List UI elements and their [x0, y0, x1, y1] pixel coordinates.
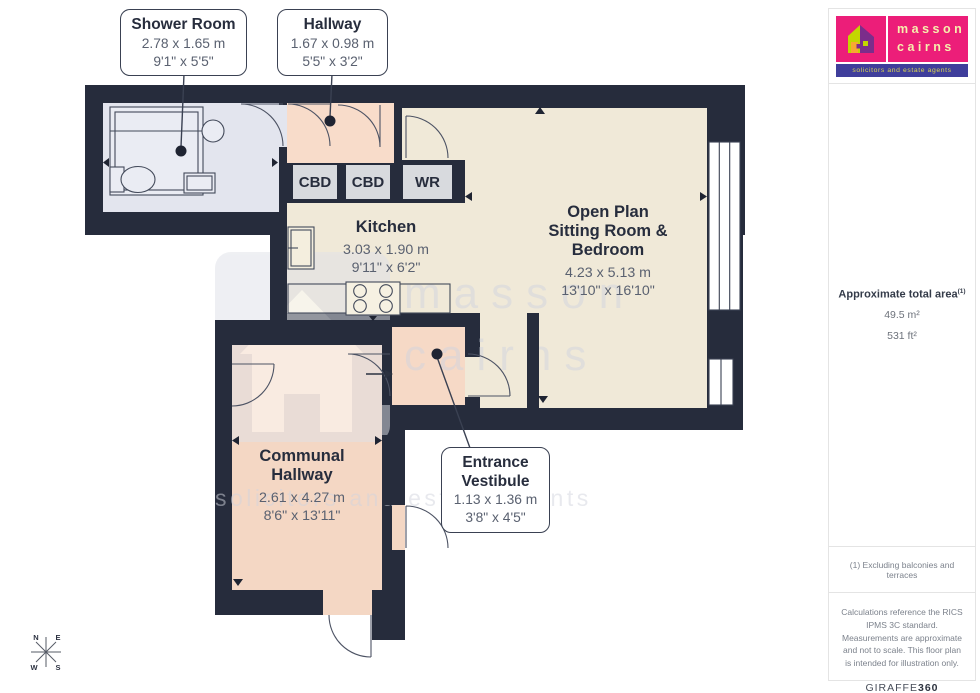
room-dims-metric: 1.67 x 0.98 m	[282, 35, 383, 53]
agency-name-line1: masson	[897, 21, 968, 39]
agency-name-line2: cairns	[897, 39, 968, 57]
compass-e: E	[55, 633, 60, 642]
room-dims-metric: 4.23 x 5.13 m	[508, 264, 708, 282]
label-open-plan: Open Plan Sitting Room & Bedroom 4.23 x …	[508, 203, 708, 301]
brand-name: GIRAFFE	[865, 682, 918, 693]
room-dims-metric: 1.13 x 1.36 m	[446, 491, 545, 509]
window-large	[709, 142, 740, 310]
room-title: Shower Room	[125, 16, 242, 35]
total-area-label: Approximate total area(1)	[838, 288, 965, 301]
room-title: Hallway	[282, 16, 383, 35]
disclaimer-section: Calculations reference the RICS IPMS 3C …	[829, 593, 975, 693]
stove	[346, 282, 400, 315]
label-closet-cbd-2: CBD	[346, 174, 390, 191]
room-title: Open Plan	[508, 203, 708, 222]
callout-hallway: Hallway 1.67 x 0.98 m 5'5" x 3'2"	[277, 9, 388, 76]
agency-tagline: solicitors and estate agents	[836, 64, 968, 77]
door-gap-communal-right	[392, 505, 405, 550]
label-closet-cbd-1: CBD	[293, 174, 337, 191]
total-area-imperial: 531 ft²	[887, 330, 917, 342]
total-area-label-text: Approximate total area	[838, 288, 957, 300]
room-dims-imperial: 8'6" x 13'11"	[212, 507, 392, 525]
room-title: Kitchen	[296, 218, 476, 237]
door-communal-bottom	[329, 615, 371, 657]
room-title: Sitting Room &	[508, 222, 708, 241]
agency-logo: masson cairns solicitors and estate agen…	[829, 9, 975, 84]
brand-suffix: 360	[918, 682, 939, 693]
room-dims-imperial: 13'10" x 16'10"	[508, 282, 708, 300]
area-footnote: (1) Excluding balconies and terraces	[829, 547, 975, 593]
label-kitchen: Kitchen 3.03 x 1.90 m 9'11" x 6'2"	[296, 218, 476, 278]
room-title: Hallway	[212, 466, 392, 485]
compass-w: W	[30, 663, 38, 672]
total-area-metric: 49.5 m²	[884, 309, 920, 321]
callout-entrance-vestibule: Entrance Vestibule 1.13 x 1.36 m 3'8" x …	[441, 447, 550, 533]
room-dims-imperial: 9'11" x 6'2"	[296, 259, 476, 277]
agency-house-icon	[836, 16, 886, 62]
room-dims-imperial: 5'5" x 3'2"	[282, 53, 383, 71]
toilet-bowl	[121, 167, 155, 193]
total-area-section: Approximate total area(1) 49.5 m² 531 ft…	[829, 84, 975, 547]
label-closet-wr: WR	[403, 174, 452, 191]
compass-s: S	[55, 663, 60, 672]
callout-shower-room: Shower Room 2.78 x 1.65 m 9'1" x 5'5"	[120, 9, 247, 76]
room-dims-imperial: 9'1" x 5'5"	[125, 53, 242, 71]
floorplan-page: masson cairns solicitors and estate agen…	[0, 0, 980, 693]
label-communal-hallway: Communal Hallway 2.61 x 4.27 m 8'6" x 13…	[212, 447, 392, 526]
room-dims-imperial: 3'8" x 4'5"	[446, 509, 545, 527]
total-area-footnote-marker: (1)	[958, 288, 966, 295]
room-dims-metric: 2.78 x 1.65 m	[125, 35, 242, 53]
agency-name: masson cairns	[888, 16, 968, 62]
compass: N E W S	[30, 633, 61, 672]
shower-head	[202, 120, 224, 142]
room-title: Vestibule	[446, 473, 545, 492]
room-dims-metric: 3.03 x 1.90 m	[296, 241, 476, 259]
room-dims-metric: 2.61 x 4.27 m	[212, 489, 392, 507]
room-title: Communal	[212, 447, 392, 466]
info-sidebar: masson cairns solicitors and estate agen…	[828, 8, 976, 681]
door-gap-communal-bottom	[323, 590, 372, 615]
compass-n: N	[33, 633, 38, 642]
room-title: Entrance	[446, 454, 545, 473]
room-title: Bedroom	[508, 241, 708, 260]
disclaimer-text: Calculations reference the RICS IPMS 3C …	[829, 593, 975, 670]
giraffe360-brand: GIRAFFE360	[829, 682, 975, 693]
